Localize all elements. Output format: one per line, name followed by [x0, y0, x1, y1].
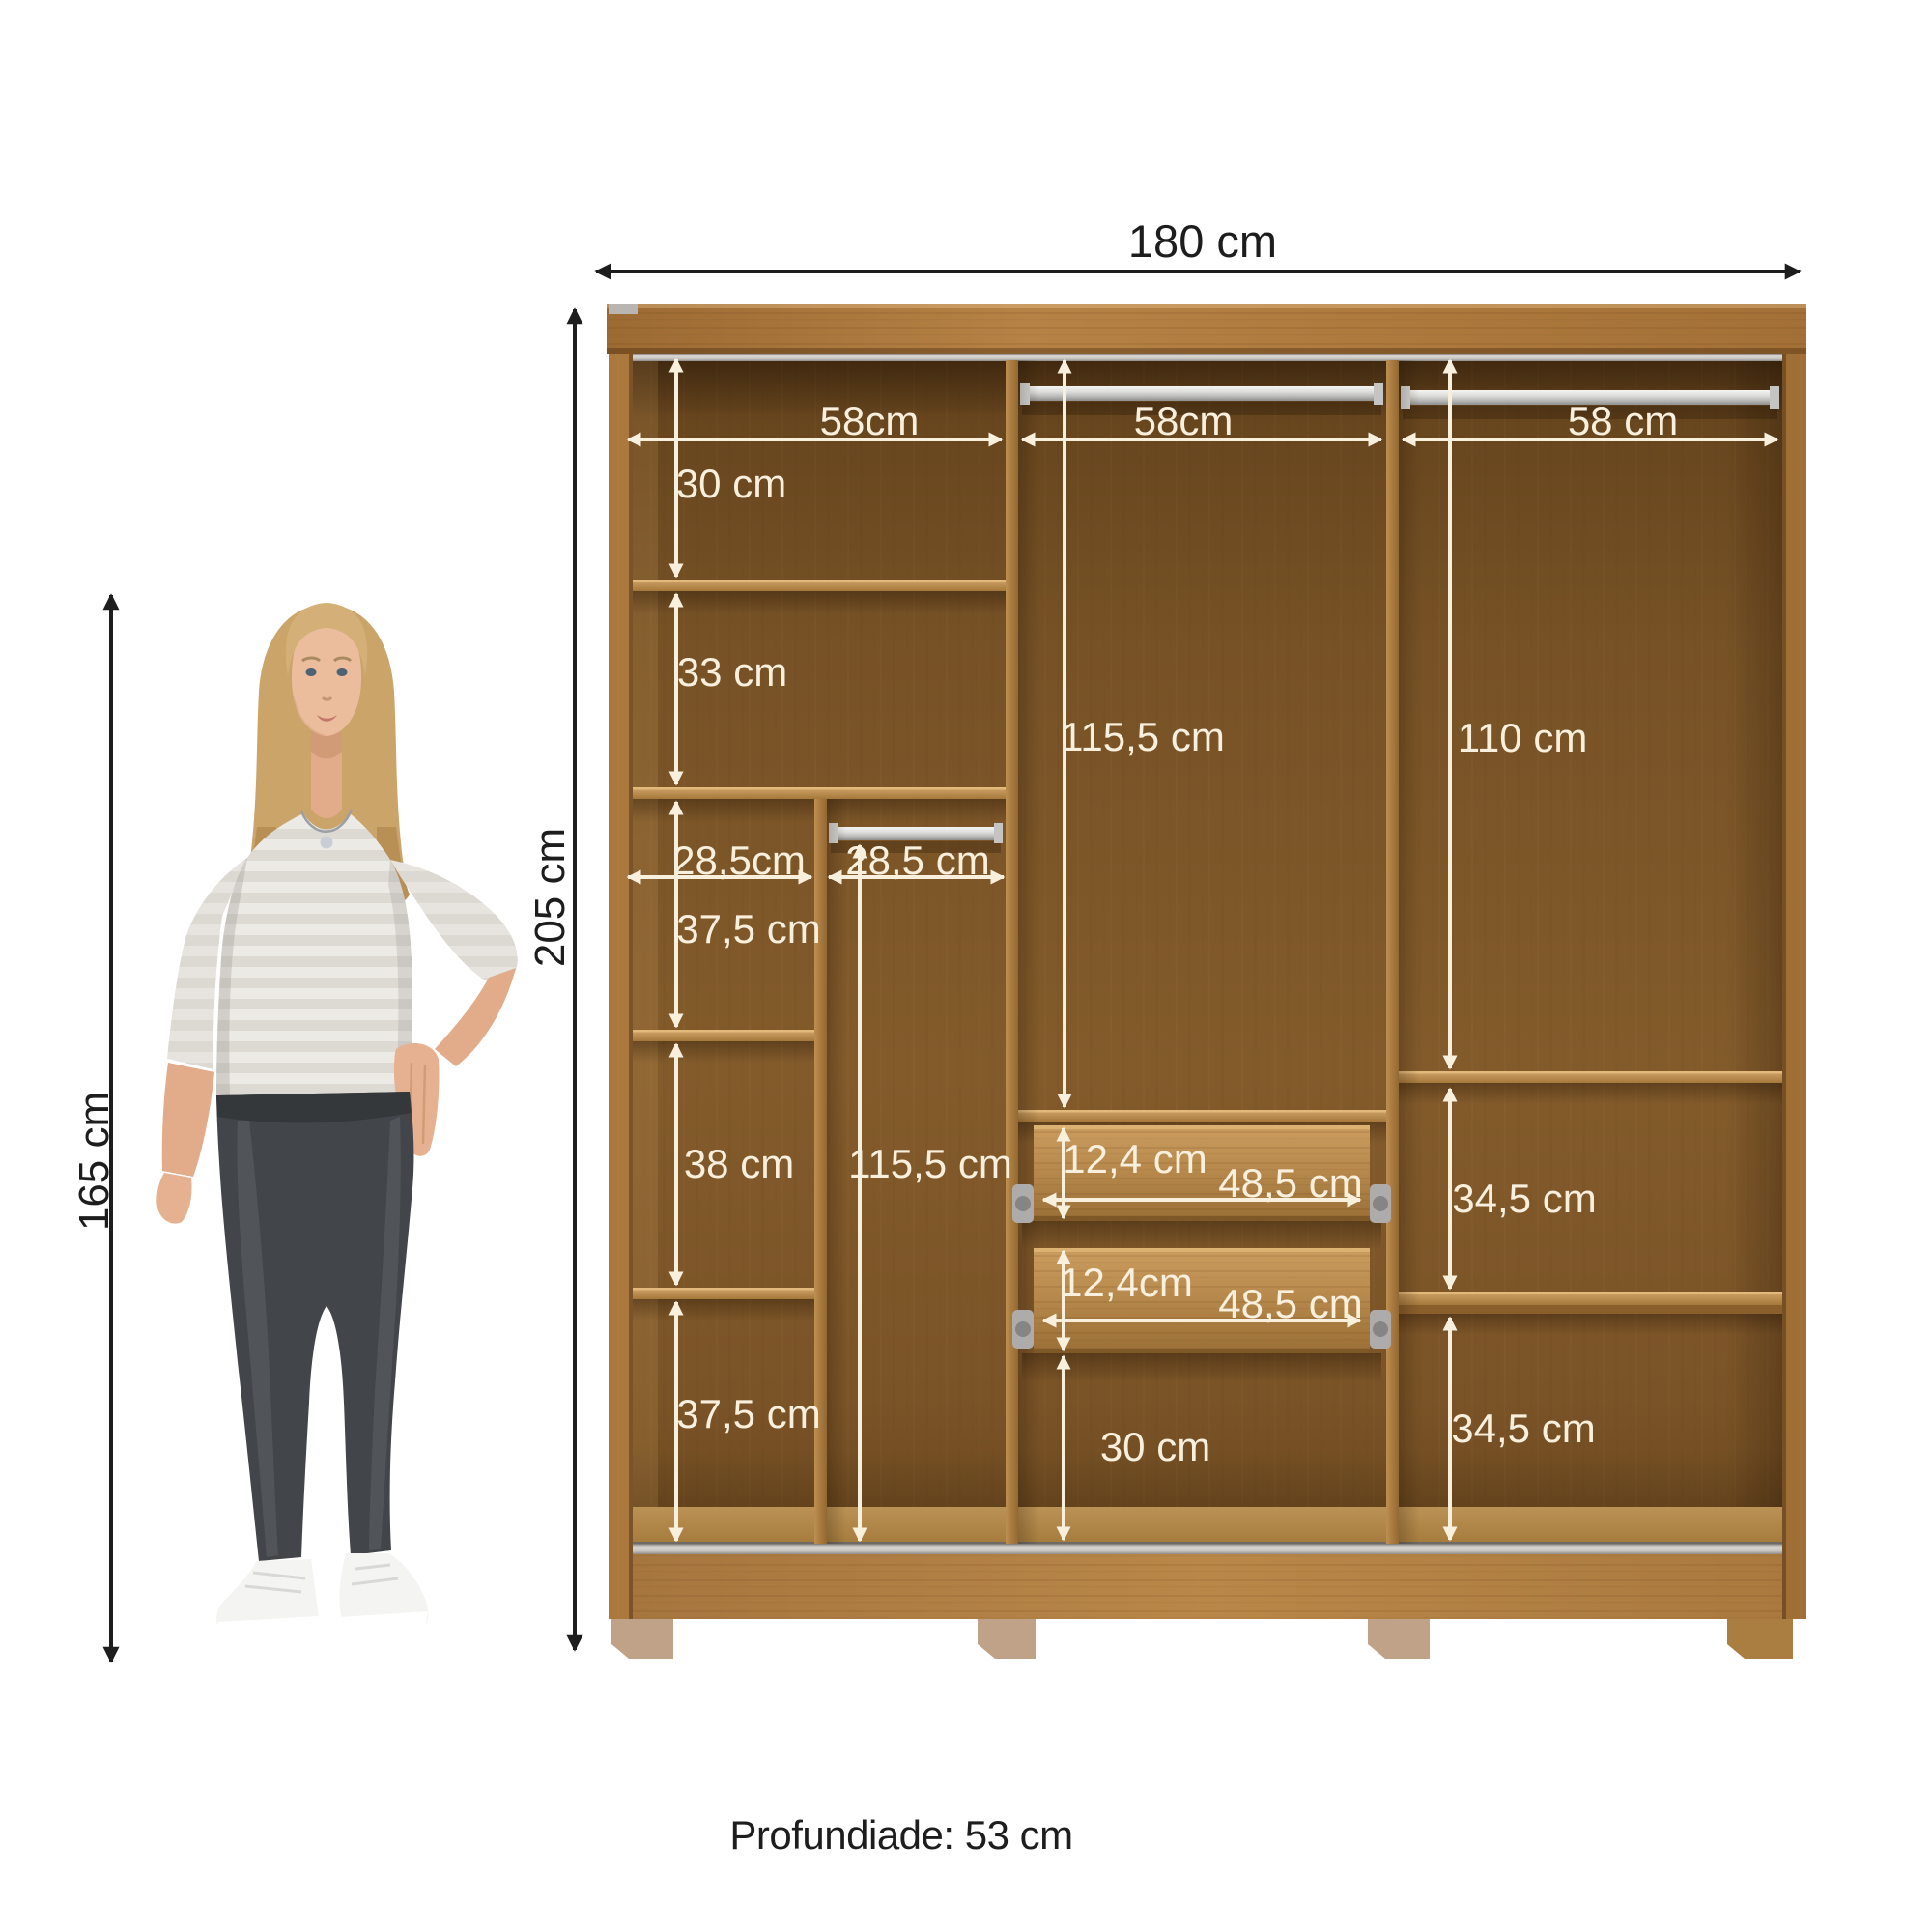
svg-text:38 cm: 38 cm — [684, 1141, 794, 1186]
svg-text:48,5 cm: 48,5 cm — [1218, 1160, 1362, 1206]
svg-text:33 cm: 33 cm — [677, 649, 787, 695]
svg-text:30 cm: 30 cm — [676, 461, 786, 506]
svg-text:58cm: 58cm — [820, 398, 920, 443]
svg-text:37,5 cm: 37,5 cm — [676, 1391, 820, 1436]
svg-text:30 cm: 30 cm — [1100, 1424, 1210, 1469]
svg-text:12,4cm: 12,4cm — [1060, 1260, 1193, 1305]
svg-text:Profundiade: 53 cm: Profundiade: 53 cm — [729, 1812, 1072, 1858]
svg-text:28,5cm: 28,5cm — [672, 838, 806, 883]
svg-text:58 cm: 58 cm — [1568, 398, 1678, 443]
svg-text:34,5 cm: 34,5 cm — [1451, 1406, 1595, 1451]
svg-text:37,5 cm: 37,5 cm — [676, 906, 820, 952]
svg-text:115,5 cm: 115,5 cm — [848, 1141, 1012, 1186]
svg-text:180 cm: 180 cm — [1128, 215, 1277, 267]
svg-text:165 cm: 165 cm — [71, 1092, 118, 1231]
svg-text:58cm: 58cm — [1134, 398, 1234, 443]
svg-text:115,5 cm: 115,5 cm — [1061, 714, 1225, 759]
svg-text:12,4 cm: 12,4 cm — [1063, 1136, 1207, 1181]
svg-text:205 cm: 205 cm — [526, 828, 574, 967]
svg-text:110 cm: 110 cm — [1458, 715, 1588, 760]
svg-text:48,5 cm: 48,5 cm — [1218, 1281, 1362, 1326]
svg-text:28,5 cm: 28,5 cm — [845, 838, 989, 883]
svg-text:34,5 cm: 34,5 cm — [1452, 1176, 1596, 1221]
